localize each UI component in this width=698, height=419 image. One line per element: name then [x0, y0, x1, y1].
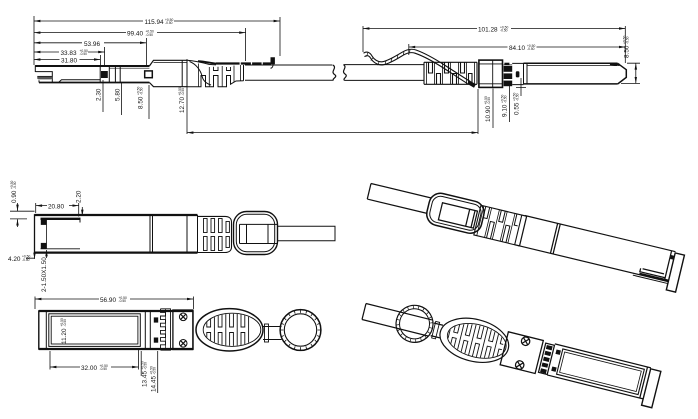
svg-text:-0.50: -0.50 [119, 299, 127, 303]
svg-text:-0.50: -0.50 [13, 181, 17, 189]
svg-text:-0.50: -0.50 [500, 29, 508, 33]
svg-text:-0.50: -0.50 [22, 258, 30, 262]
svg-text:8.50: 8.50 [624, 45, 631, 58]
svg-text:8.50: 8.50 [138, 96, 145, 109]
svg-text:-0.50: -0.50 [100, 367, 108, 371]
svg-text:0.55: 0.55 [514, 102, 521, 115]
svg-text:56.90: 56.90 [100, 297, 116, 304]
svg-text:32.00: 32.00 [81, 365, 97, 372]
svg-text:2.20: 2.20 [76, 190, 83, 203]
svg-text:-0.50: -0.50 [504, 95, 508, 103]
svg-text:-0.50: -0.50 [527, 47, 535, 51]
svg-text:13.45: 13.45 [142, 371, 149, 387]
svg-text:115.94: 115.94 [145, 19, 165, 26]
svg-text:99.40: 99.40 [127, 31, 143, 38]
svg-text:-0.50: -0.50 [626, 36, 630, 44]
svg-text:14.45: 14.45 [151, 376, 158, 392]
svg-text:-0.50: -0.50 [181, 88, 185, 96]
svg-text:-0.50: -0.50 [146, 33, 154, 37]
svg-text:11.20: 11.20 [61, 328, 68, 344]
svg-text:-0.50: -0.50 [165, 21, 173, 25]
svg-text:0.90: 0.90 [11, 190, 18, 203]
svg-text:-0.50: -0.50 [140, 87, 144, 95]
svg-text:2.30: 2.30 [96, 88, 103, 101]
svg-text:84.10: 84.10 [509, 45, 525, 52]
svg-text:9.10: 9.10 [502, 104, 509, 117]
svg-text:31.80: 31.80 [61, 58, 77, 65]
svg-text:20.80: 20.80 [48, 203, 64, 210]
svg-text:-0.50: -0.50 [144, 362, 148, 370]
svg-text:2-1.50X1.50: 2-1.50X1.50 [41, 257, 48, 292]
svg-text:-0.50: -0.50 [487, 97, 491, 105]
svg-text:53.96: 53.96 [84, 41, 100, 48]
svg-text:-0.50: -0.50 [63, 319, 67, 327]
svg-text:-0.50: -0.50 [516, 93, 520, 101]
svg-text:10.90: 10.90 [485, 106, 492, 122]
svg-text:4.20: 4.20 [8, 256, 21, 263]
svg-text:101.28: 101.28 [478, 27, 498, 34]
svg-text:-0.50: -0.50 [80, 52, 88, 56]
svg-text:-0.50: -0.50 [153, 367, 157, 375]
svg-text:5.80: 5.80 [115, 88, 122, 101]
svg-text:12.70: 12.70 [179, 97, 186, 113]
